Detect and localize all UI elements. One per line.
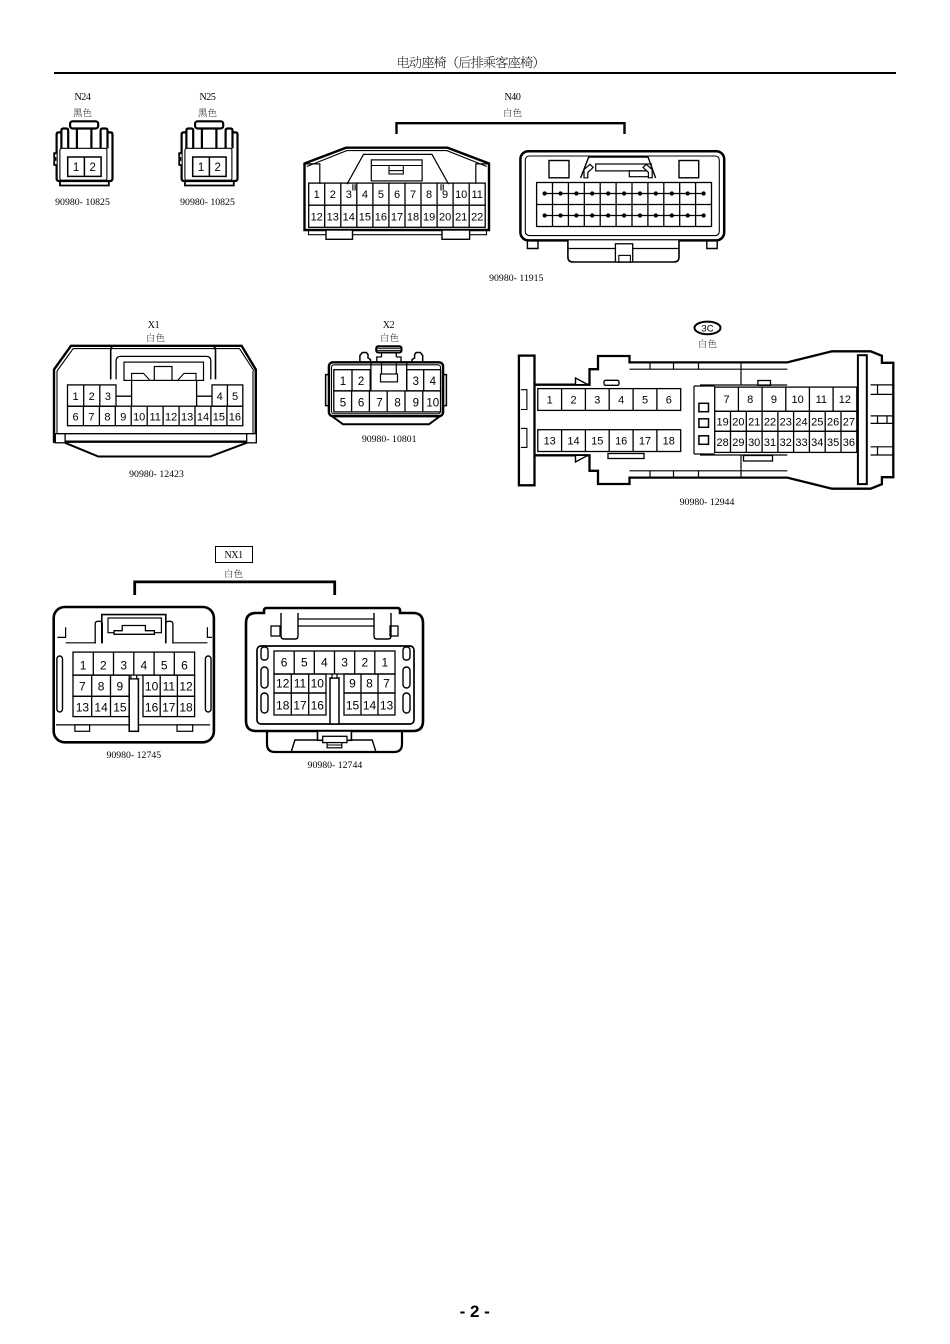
svg-text:16: 16	[375, 211, 387, 223]
svg-text:5: 5	[378, 189, 384, 201]
svg-text:10: 10	[791, 394, 803, 406]
svg-text:2: 2	[89, 162, 95, 174]
svg-text:19: 19	[716, 416, 728, 428]
svg-text:15: 15	[359, 211, 371, 223]
svg-text:11: 11	[816, 394, 827, 406]
svg-text:1: 1	[314, 189, 320, 201]
svg-text:6: 6	[281, 655, 288, 669]
svg-text:1: 1	[73, 162, 79, 174]
svg-text:18: 18	[663, 436, 675, 448]
svg-text:22: 22	[764, 416, 776, 428]
svg-text:24: 24	[795, 416, 807, 428]
svg-text:3: 3	[413, 376, 419, 388]
svg-text:17: 17	[293, 699, 307, 713]
svg-text:13: 13	[181, 412, 193, 424]
svg-text:3C: 3C	[701, 323, 713, 334]
svg-text:12: 12	[165, 412, 177, 424]
svg-text:2: 2	[330, 189, 336, 201]
svg-text:2: 2	[214, 162, 220, 174]
svg-text:6: 6	[358, 397, 364, 409]
svg-text:1: 1	[80, 658, 87, 672]
svg-text:20: 20	[732, 416, 744, 428]
svg-text:5: 5	[161, 658, 168, 672]
svg-text:29: 29	[732, 437, 744, 449]
svg-text:7: 7	[383, 677, 390, 691]
svg-text:16: 16	[145, 700, 159, 714]
svg-text:5: 5	[232, 391, 238, 403]
svg-text:6: 6	[394, 189, 400, 201]
svg-text:2: 2	[361, 655, 368, 669]
svg-text:28: 28	[716, 437, 728, 449]
svg-text:35: 35	[827, 437, 839, 449]
svg-text:26: 26	[827, 416, 839, 428]
svg-text:10: 10	[426, 397, 439, 409]
svg-text:21: 21	[748, 416, 760, 428]
svg-text:9: 9	[120, 412, 126, 424]
svg-text:4: 4	[321, 655, 328, 669]
svg-text:8: 8	[747, 394, 753, 406]
svg-text:3: 3	[120, 658, 127, 672]
svg-text:14: 14	[343, 211, 355, 223]
svg-text:2: 2	[358, 376, 364, 388]
svg-text:14: 14	[363, 699, 377, 713]
svg-text:1: 1	[73, 391, 79, 403]
svg-text:16: 16	[615, 436, 627, 448]
svg-text:16: 16	[229, 412, 241, 424]
svg-text:8: 8	[98, 680, 105, 694]
svg-text:17: 17	[391, 211, 403, 223]
svg-text:15: 15	[591, 436, 603, 448]
svg-text:14: 14	[94, 700, 108, 714]
svg-text:7: 7	[88, 412, 94, 424]
svg-text:5: 5	[340, 397, 346, 409]
svg-text:10: 10	[455, 189, 467, 201]
svg-text:2: 2	[100, 658, 107, 672]
svg-text:8: 8	[394, 397, 400, 409]
svg-text:33: 33	[795, 437, 807, 449]
svg-text:32: 32	[780, 437, 792, 449]
svg-text:8: 8	[426, 189, 432, 201]
svg-text:10: 10	[311, 677, 325, 691]
svg-text:18: 18	[276, 699, 290, 713]
svg-text:36: 36	[843, 437, 855, 449]
svg-text:13: 13	[544, 436, 556, 448]
svg-text:4: 4	[430, 376, 437, 388]
svg-text:20: 20	[439, 211, 451, 223]
svg-text:1: 1	[198, 162, 204, 174]
svg-text:25: 25	[811, 416, 823, 428]
svg-text:9: 9	[771, 394, 777, 406]
svg-text:8: 8	[366, 677, 373, 691]
svg-text:3: 3	[346, 189, 352, 201]
svg-text:3: 3	[105, 391, 111, 403]
svg-text:9: 9	[117, 680, 124, 694]
svg-text:1: 1	[340, 376, 346, 388]
svg-text:15: 15	[113, 700, 127, 714]
svg-text:5: 5	[301, 655, 308, 669]
svg-text:14: 14	[567, 436, 579, 448]
svg-text:11: 11	[163, 680, 176, 694]
svg-text:2: 2	[570, 395, 576, 407]
svg-text:22: 22	[471, 211, 483, 223]
svg-text:10: 10	[145, 680, 159, 694]
svg-text:11: 11	[471, 189, 482, 201]
svg-text:17: 17	[639, 436, 651, 448]
svg-text:12: 12	[179, 680, 193, 694]
svg-text:11: 11	[294, 677, 307, 691]
svg-text:4: 4	[362, 189, 368, 201]
svg-text:1: 1	[382, 655, 389, 669]
svg-text:14: 14	[197, 412, 209, 424]
svg-text:3: 3	[341, 655, 348, 669]
svg-text:13: 13	[327, 211, 339, 223]
svg-text:19: 19	[423, 211, 435, 223]
svg-text:12: 12	[276, 677, 290, 691]
svg-text:16: 16	[311, 699, 325, 713]
svg-text:10: 10	[133, 412, 145, 424]
svg-text:6: 6	[666, 395, 672, 407]
svg-text:13: 13	[380, 699, 394, 713]
svg-text:34: 34	[811, 437, 823, 449]
svg-text:30: 30	[748, 437, 760, 449]
svg-text:7: 7	[723, 394, 729, 406]
svg-text:31: 31	[764, 437, 776, 449]
svg-text:12: 12	[311, 211, 323, 223]
svg-text:13: 13	[76, 700, 90, 714]
svg-text:18: 18	[407, 211, 419, 223]
svg-text:17: 17	[162, 700, 176, 714]
svg-text:1: 1	[547, 395, 553, 407]
svg-text:9: 9	[413, 397, 419, 409]
svg-text:7: 7	[376, 397, 382, 409]
svg-text:4: 4	[618, 395, 624, 407]
svg-text:15: 15	[346, 699, 360, 713]
svg-text:5: 5	[642, 395, 648, 407]
svg-text:27: 27	[843, 416, 855, 428]
svg-text:2: 2	[89, 391, 95, 403]
svg-text:3: 3	[594, 395, 600, 407]
svg-text:12: 12	[839, 394, 851, 406]
svg-text:7: 7	[79, 680, 86, 694]
svg-text:7: 7	[410, 189, 416, 201]
svg-text:4: 4	[217, 391, 223, 403]
svg-text:4: 4	[141, 658, 148, 672]
svg-text:6: 6	[72, 412, 78, 424]
svg-text:8: 8	[104, 412, 110, 424]
svg-text:21: 21	[455, 211, 467, 223]
svg-text:9: 9	[349, 677, 356, 691]
svg-text:18: 18	[179, 700, 193, 714]
svg-text:6: 6	[181, 658, 188, 672]
svg-text:23: 23	[780, 416, 792, 428]
svg-text:15: 15	[213, 412, 225, 424]
svg-text:9: 9	[442, 189, 448, 201]
svg-text:11: 11	[149, 412, 160, 424]
